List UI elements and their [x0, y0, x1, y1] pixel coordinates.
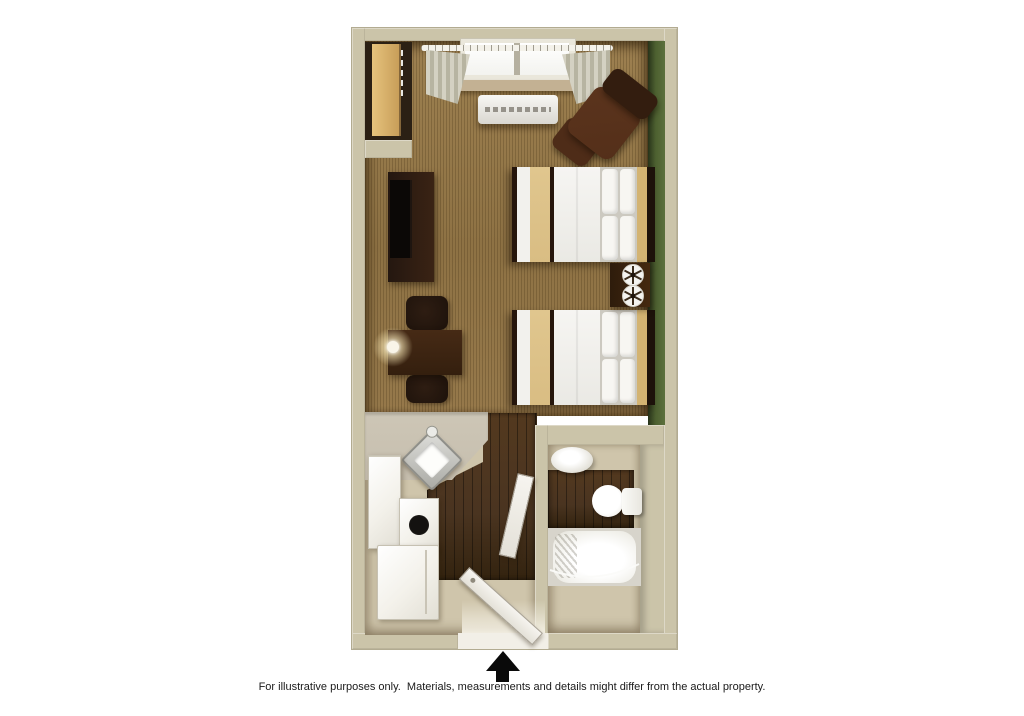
- floorplan: [352, 28, 677, 649]
- bed-pillows: [600, 167, 637, 262]
- armchair-group: [552, 80, 652, 176]
- nightstand-lamps-icon: [610, 263, 650, 307]
- entry-door-knob: [469, 577, 476, 584]
- pillow: [602, 359, 618, 404]
- ac-vents: [485, 107, 551, 112]
- bed-duvet: [554, 167, 600, 262]
- desk-chair-top: [406, 296, 448, 330]
- stove-burner: [409, 515, 429, 535]
- bed-headboard: [647, 310, 655, 405]
- bathroom-wall-right: [640, 445, 664, 633]
- closet-hanger-rod: [401, 50, 403, 96]
- toilet-bowl: [592, 485, 624, 517]
- entrance-arrow-head: [486, 651, 520, 671]
- bed-duvet: [554, 310, 600, 405]
- pillow: [620, 312, 636, 357]
- caption: For illustrative purposes only. Material…: [0, 680, 1024, 694]
- shower-rod: [548, 528, 641, 586]
- refrigerator: [377, 545, 439, 620]
- kitchen-sink-basin: [414, 442, 451, 479]
- ac-unit: [478, 95, 558, 124]
- bathroom-sink: [551, 447, 593, 473]
- pillow: [602, 312, 618, 357]
- wall-left: [352, 28, 365, 649]
- curtain-rod: [421, 45, 613, 51]
- tv: [390, 180, 412, 258]
- bed-runner: [530, 310, 550, 405]
- kitchen-cabinet: [368, 455, 401, 549]
- toilet: [592, 485, 642, 519]
- pillow: [602, 169, 618, 214]
- bed-sheet-fold: [517, 167, 530, 262]
- nightstand: [610, 263, 650, 307]
- closet-door: [372, 44, 401, 136]
- bed-runner: [530, 167, 550, 262]
- bed-pillows: [600, 310, 637, 405]
- bed-sheet-fold: [517, 310, 530, 405]
- wall-bottom-left: [352, 633, 458, 649]
- floorplan-image: For illustrative purposes only. Material…: [0, 0, 1024, 716]
- bed-headboard-panel: [637, 167, 647, 262]
- entrance-arrow-icon: [486, 651, 520, 683]
- closet-wall-stub: [365, 140, 412, 158]
- pillow: [620, 359, 636, 404]
- pillow: [620, 216, 636, 261]
- wall-bottom-right: [548, 633, 677, 649]
- desk-lamp: [387, 341, 399, 353]
- pillow: [620, 169, 636, 214]
- desk-chair-bottom: [406, 375, 448, 403]
- bed-1: [512, 167, 655, 262]
- pillow: [602, 216, 618, 261]
- bed-headboard-panel: [637, 310, 647, 405]
- bed-2: [512, 310, 655, 405]
- bathroom-wall-top: [535, 425, 664, 445]
- refrigerator-handle: [425, 550, 427, 614]
- wall-right: [664, 28, 677, 649]
- bathtub: [548, 528, 641, 586]
- bed-headboard: [647, 167, 655, 262]
- toilet-tank: [622, 488, 642, 515]
